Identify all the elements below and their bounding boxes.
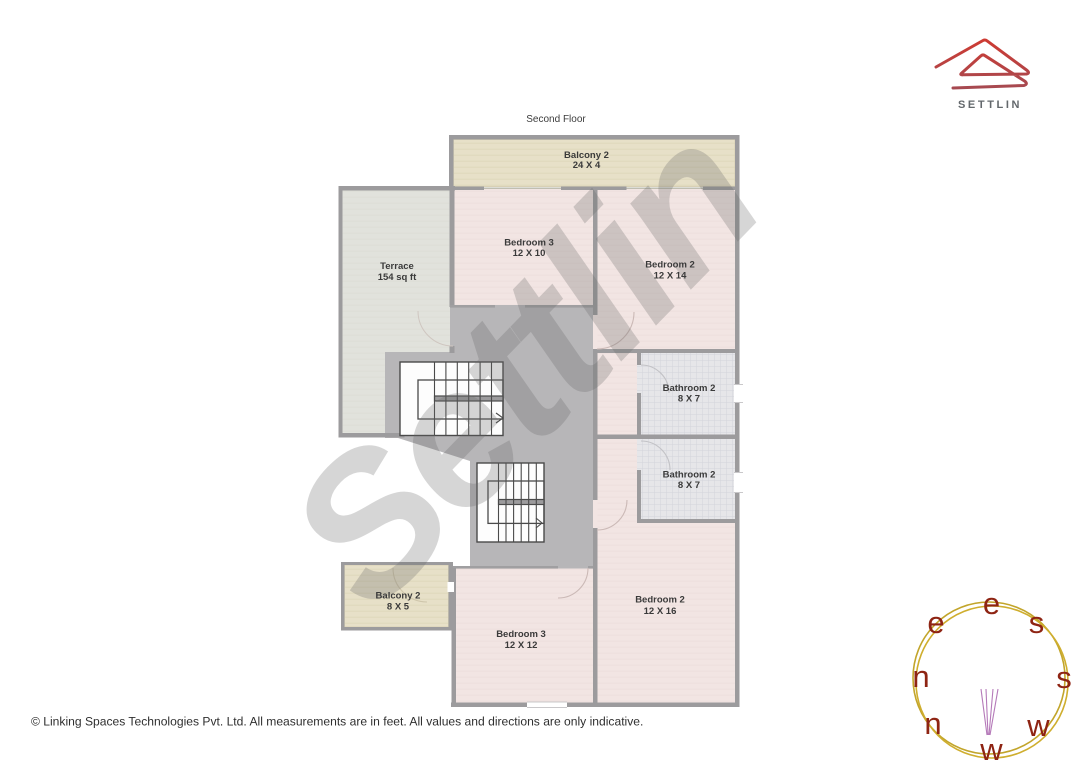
svg-text:Bedroom 2: Bedroom 2 (635, 595, 685, 606)
svg-text:Balcony 2: Balcony 2 (376, 591, 421, 602)
svg-text:s: s (1056, 660, 1072, 695)
svg-text:e: e (927, 605, 944, 640)
svg-text:w: w (1026, 708, 1050, 743)
svg-text:154 sq ft: 154 sq ft (378, 272, 417, 283)
svg-text:Bedroom 3: Bedroom 3 (496, 629, 546, 640)
svg-text:n: n (924, 706, 941, 741)
svg-text:8 X 5: 8 X 5 (387, 602, 410, 613)
svg-text:SETTLIN: SETTLIN (958, 99, 1022, 111)
svg-text:w: w (979, 732, 1003, 764)
svg-text:Bathroom 2: Bathroom 2 (663, 383, 716, 394)
svg-text:12 X 12: 12 X 12 (505, 640, 538, 651)
svg-text:Bathroom 2: Bathroom 2 (663, 470, 716, 481)
svg-text:Bedroom 2: Bedroom 2 (645, 260, 695, 271)
svg-text:12 X 14: 12 X 14 (654, 271, 687, 282)
svg-text:Bedroom 3: Bedroom 3 (504, 238, 554, 249)
svg-text:s: s (1029, 605, 1045, 640)
svg-text:12 X 10: 12 X 10 (513, 248, 546, 259)
svg-text:e: e (983, 586, 1000, 621)
svg-text:Terrace: Terrace (380, 261, 414, 272)
svg-text:8 X 7: 8 X 7 (678, 480, 700, 491)
svg-text:24 X 4: 24 X 4 (573, 160, 601, 171)
svg-text:12 X 16: 12 X 16 (644, 606, 677, 617)
svg-text:8 X 7: 8 X 7 (678, 394, 700, 405)
svg-text:Second Floor: Second Floor (526, 114, 586, 125)
svg-text:n: n (912, 659, 929, 694)
svg-text:© Linking Spaces Technologies: © Linking Spaces Technologies Pvt. Ltd. … (31, 715, 643, 729)
